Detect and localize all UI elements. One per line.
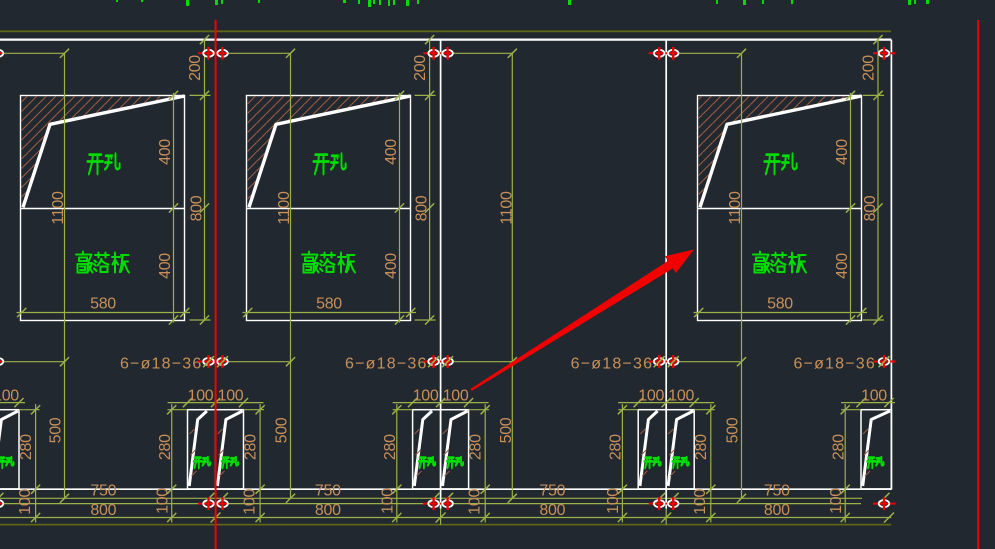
svg-text:800: 800 (315, 502, 341, 519)
svg-text:100: 100 (605, 488, 622, 514)
svg-text:100: 100 (638, 387, 664, 404)
svg-text:800: 800 (764, 502, 790, 519)
svg-text:280: 280 (693, 434, 710, 460)
svg-text:400: 400 (834, 253, 851, 279)
svg-text:580: 580 (90, 296, 116, 313)
svg-text:750: 750 (764, 482, 790, 499)
svg-text:100: 100 (443, 387, 469, 404)
svg-text:280: 280 (468, 434, 485, 460)
svg-text:6−ø18−36: 6−ø18−36 (345, 355, 428, 372)
svg-text:6−ø18−36: 6−ø18−36 (120, 355, 203, 372)
svg-text:500: 500 (725, 417, 742, 443)
svg-text:800: 800 (539, 502, 565, 519)
svg-text:6−ø18−36: 6−ø18−36 (793, 355, 876, 372)
svg-text:280: 280 (382, 434, 399, 460)
svg-text:100: 100 (155, 488, 172, 514)
svg-text:500: 500 (48, 417, 65, 443)
svg-text:200: 200 (187, 55, 204, 81)
svg-text:280: 280 (18, 434, 35, 460)
svg-text:1100: 1100 (498, 191, 515, 225)
svg-text:500: 500 (274, 417, 291, 443)
svg-text:100: 100 (692, 489, 709, 515)
svg-text:100: 100 (188, 387, 214, 404)
svg-text:200: 200 (412, 55, 429, 81)
svg-text:100: 100 (17, 489, 34, 515)
svg-text:400: 400 (157, 139, 174, 165)
svg-text:800: 800 (90, 502, 116, 519)
svg-text:100: 100 (668, 387, 694, 404)
svg-text:750: 750 (539, 482, 565, 499)
svg-text:750: 750 (315, 482, 341, 499)
svg-text:200: 200 (861, 55, 878, 81)
svg-text:800: 800 (414, 195, 431, 221)
svg-text:400: 400 (157, 253, 174, 279)
svg-text:100: 100 (467, 489, 484, 515)
svg-text:400: 400 (383, 253, 400, 279)
svg-text:750: 750 (90, 482, 116, 499)
svg-text:580: 580 (767, 296, 793, 313)
svg-text:100: 100 (828, 488, 845, 514)
svg-text:1100: 1100 (727, 191, 744, 225)
svg-text:100: 100 (413, 387, 439, 404)
svg-text:100: 100 (242, 489, 259, 515)
svg-text:100: 100 (218, 387, 244, 404)
svg-text:100: 100 (0, 387, 19, 404)
svg-text:280: 280 (831, 434, 848, 460)
svg-text:1100: 1100 (276, 191, 293, 225)
svg-text:800: 800 (189, 195, 206, 221)
svg-text:400: 400 (834, 139, 851, 165)
svg-text:6−ø18−36: 6−ø18−36 (571, 355, 654, 372)
svg-text:100: 100 (861, 387, 887, 404)
svg-text:500: 500 (498, 417, 515, 443)
svg-text:800: 800 (862, 195, 879, 221)
svg-text:400: 400 (383, 139, 400, 165)
svg-text:280: 280 (243, 434, 260, 460)
svg-text:580: 580 (316, 296, 342, 313)
svg-text:280: 280 (157, 434, 174, 460)
svg-text:1100: 1100 (50, 191, 67, 225)
svg-text:100: 100 (380, 488, 397, 514)
svg-text:280: 280 (608, 434, 625, 460)
